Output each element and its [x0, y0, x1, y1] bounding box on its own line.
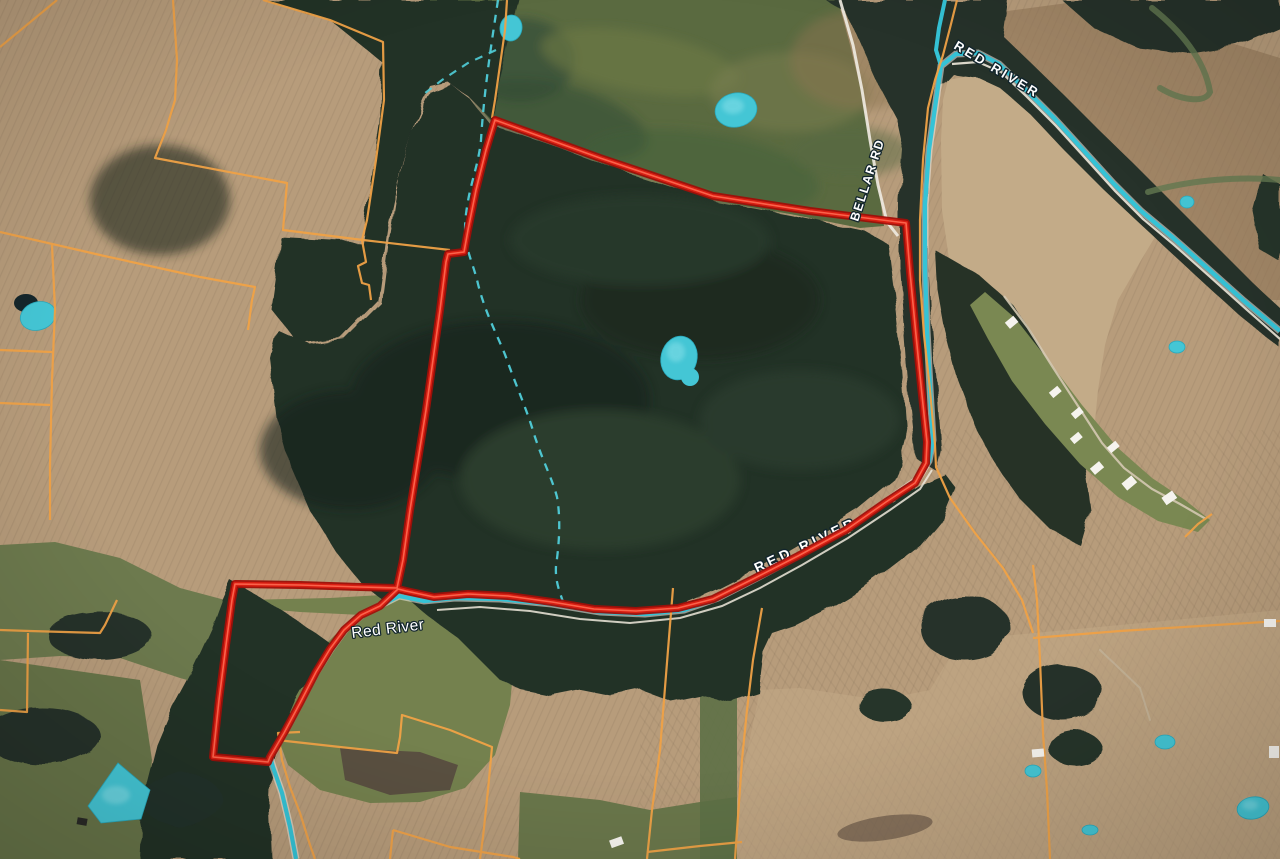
vignette — [0, 0, 1280, 859]
map-canvas: RED RIVER — [0, 0, 1280, 859]
satellite-map[interactable]: RED RIVER — [0, 0, 1280, 859]
